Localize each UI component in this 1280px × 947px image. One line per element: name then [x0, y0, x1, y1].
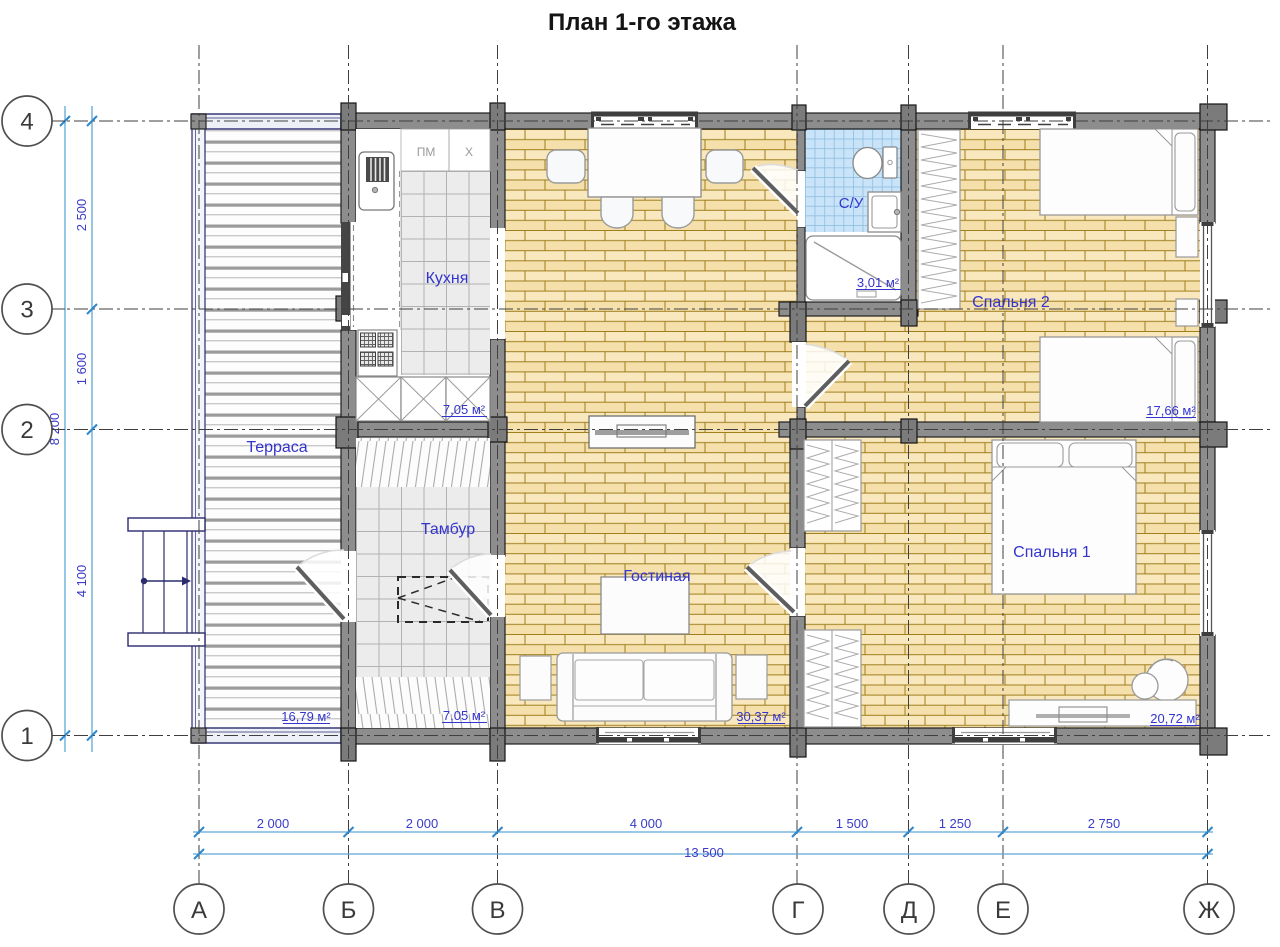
- svg-text:2: 2: [20, 417, 33, 444]
- svg-text:Е: Е: [995, 897, 1011, 924]
- svg-text:3: 3: [20, 297, 33, 324]
- svg-text:20,72 м²: 20,72 м²: [1150, 711, 1200, 726]
- svg-text:7,05 м²: 7,05 м²: [443, 402, 486, 417]
- svg-text:План 1-го этажа: План 1-го этажа: [548, 9, 737, 36]
- svg-text:Спальня 2: Спальня 2: [972, 294, 1050, 311]
- svg-text:3,01 м²: 3,01 м²: [857, 275, 900, 290]
- svg-text:Ж: Ж: [1198, 897, 1220, 924]
- svg-text:Терраса: Терраса: [246, 439, 307, 456]
- svg-text:С/У: С/У: [839, 195, 864, 212]
- svg-text:16,79 м²: 16,79 м²: [281, 709, 331, 724]
- svg-text:Спальня 1: Спальня 1: [1013, 544, 1091, 561]
- svg-text:1 600: 1 600: [74, 353, 89, 386]
- svg-text:Д: Д: [901, 897, 917, 924]
- svg-text:2 750: 2 750: [1088, 816, 1121, 831]
- svg-text:1 250: 1 250: [939, 816, 972, 831]
- svg-text:2 000: 2 000: [406, 816, 439, 831]
- svg-text:13 500: 13 500: [684, 845, 724, 860]
- svg-text:Б: Б: [341, 897, 357, 924]
- svg-text:7,05 м²: 7,05 м²: [443, 708, 486, 723]
- svg-text:2 000: 2 000: [257, 816, 290, 831]
- svg-text:Г: Г: [792, 897, 805, 924]
- svg-text:4 000: 4 000: [630, 816, 663, 831]
- svg-text:Кухня: Кухня: [426, 270, 469, 287]
- svg-text:Гостиная: Гостиная: [623, 568, 690, 585]
- svg-text:4 100: 4 100: [74, 565, 89, 598]
- svg-text:ПМ: ПМ: [417, 145, 436, 159]
- svg-text:1: 1: [20, 723, 33, 750]
- svg-text:17,66 м²: 17,66 м²: [1146, 403, 1196, 418]
- svg-text:Тамбур: Тамбур: [421, 521, 475, 538]
- svg-text:30,37 м²: 30,37 м²: [736, 709, 786, 724]
- svg-text:А: А: [191, 897, 207, 924]
- svg-text:В: В: [489, 897, 505, 924]
- svg-text:Х: Х: [465, 145, 473, 159]
- svg-text:2 500: 2 500: [74, 199, 89, 232]
- svg-text:4: 4: [20, 109, 33, 136]
- svg-text:1 500: 1 500: [836, 816, 869, 831]
